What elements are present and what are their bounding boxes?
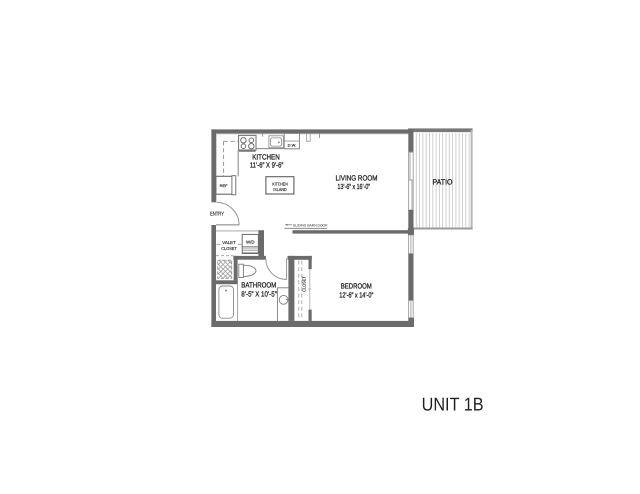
svg-text:PATIO: PATIO bbox=[433, 178, 453, 187]
svg-text:LIVING ROOM: LIVING ROOM bbox=[336, 173, 378, 182]
svg-text:W/D: W/D bbox=[246, 240, 255, 245]
svg-text:13’-6” x 16’-0”: 13’-6” x 16’-0” bbox=[338, 182, 371, 191]
svg-text:11’-6” X 9’-6”: 11’-6” X 9’-6” bbox=[250, 160, 284, 169]
svg-text:KITCHEN: KITCHEN bbox=[272, 182, 288, 187]
svg-text:12’-6” x 14’-0”: 12’-6” x 14’-0” bbox=[339, 290, 373, 299]
svg-text:D.W.: D.W. bbox=[288, 143, 297, 147]
svg-text:SLIDING BARN DOOR: SLIDING BARN DOOR bbox=[293, 223, 328, 227]
svg-text:ISLAND: ISLAND bbox=[273, 187, 287, 192]
svg-text:REF: REF bbox=[220, 184, 229, 188]
svg-text:CLOSET: CLOSET bbox=[221, 246, 237, 251]
svg-text:BATHROOM: BATHROOM bbox=[241, 281, 276, 290]
svg-text:8’-5” X 10’-5”: 8’-5” X 10’-5” bbox=[241, 290, 277, 299]
svg-text:BEDROOM: BEDROOM bbox=[341, 281, 372, 290]
svg-text:ENTRY: ENTRY bbox=[210, 212, 224, 218]
svg-text:UNIT 1B: UNIT 1B bbox=[422, 393, 484, 414]
svg-text:CLOSET: CLOSET bbox=[301, 276, 306, 292]
svg-text:VALET: VALET bbox=[222, 240, 236, 245]
